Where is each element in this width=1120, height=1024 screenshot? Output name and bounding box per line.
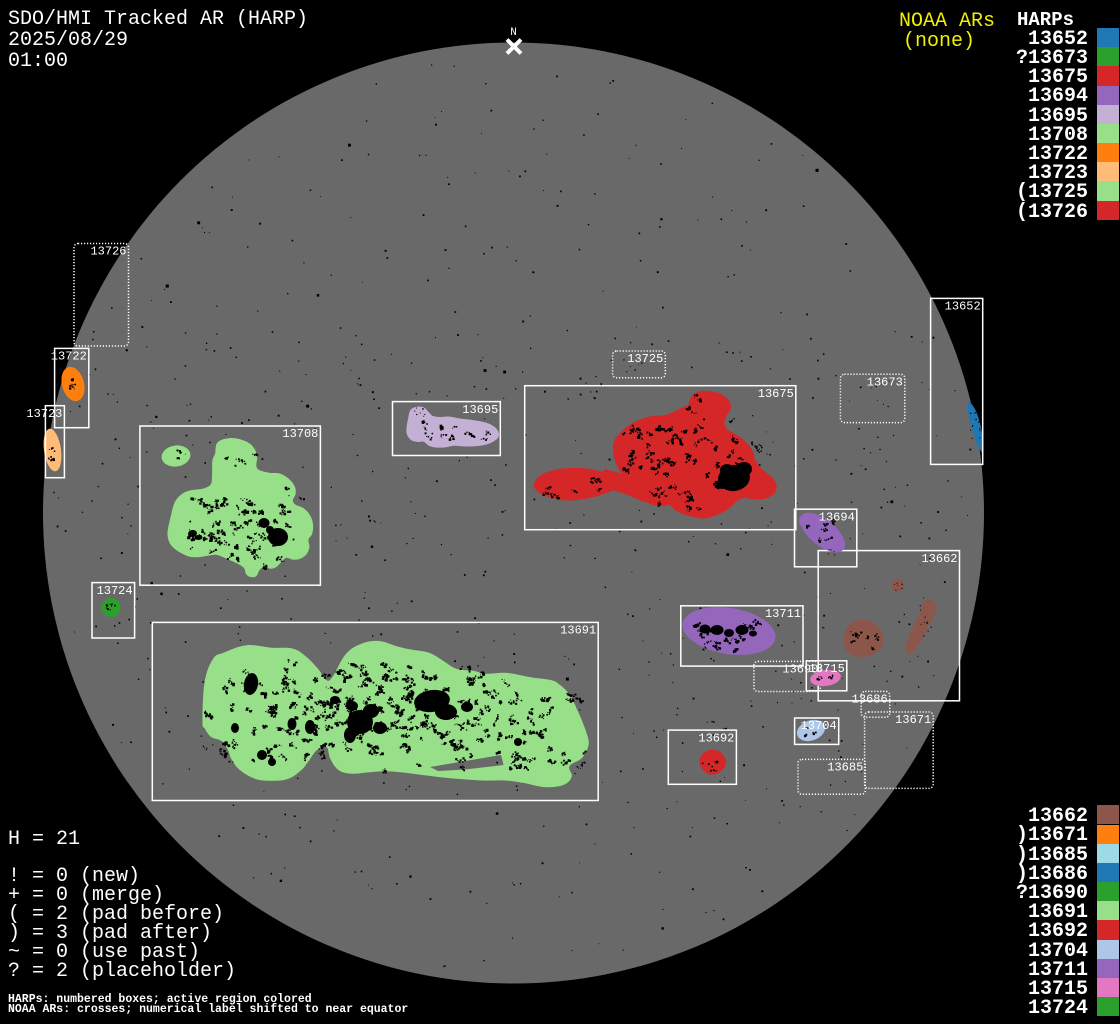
svg-text:13725: 13725 xyxy=(627,352,663,366)
svg-text:13722: 13722 xyxy=(51,350,87,364)
svg-text:13704: 13704 xyxy=(801,719,837,733)
svg-text:13715: 13715 xyxy=(809,662,845,676)
svg-text:13686: 13686 xyxy=(852,693,888,707)
svg-text:13652: 13652 xyxy=(945,300,981,314)
svg-text:13671: 13671 xyxy=(895,713,931,727)
svg-text:13724: 13724 xyxy=(97,584,133,598)
svg-text:13711: 13711 xyxy=(765,607,801,621)
svg-text:13692: 13692 xyxy=(698,731,734,745)
svg-text:13675: 13675 xyxy=(758,387,794,401)
svg-text:13726: 13726 xyxy=(90,245,126,259)
svg-text:13723: 13723 xyxy=(26,407,62,421)
svg-text:N: N xyxy=(510,27,517,39)
svg-text:13708: 13708 xyxy=(282,427,318,441)
svg-text:13694: 13694 xyxy=(819,510,855,524)
svg-text:13685: 13685 xyxy=(827,761,863,775)
svg-text:13673: 13673 xyxy=(867,376,903,390)
svg-text:13662: 13662 xyxy=(921,552,957,566)
svg-text:13695: 13695 xyxy=(462,403,498,417)
svg-text:13691: 13691 xyxy=(560,624,596,638)
